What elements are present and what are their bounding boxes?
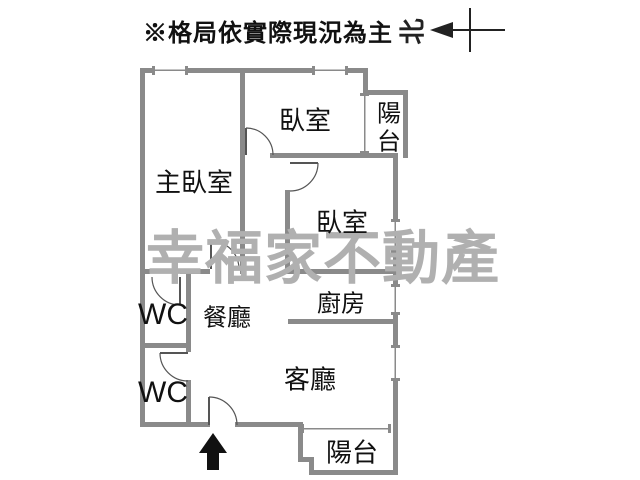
room-label-bedroom-top: 臥室 xyxy=(279,101,331,138)
room-label-master-bedroom: 主臥室 xyxy=(155,163,233,200)
room-label-balcony-bottom: 陽台 xyxy=(326,433,378,470)
room-label-living: 客廳 xyxy=(284,360,336,397)
room-label-kitchen: 廚房 xyxy=(317,284,365,319)
room-label-balcony-top: 陽台 xyxy=(375,100,403,155)
room-label-dining: 餐廳 xyxy=(203,298,251,333)
room-label-bedroom-right: 臥室 xyxy=(316,203,368,240)
room-label-wc-upper: WC xyxy=(138,298,188,332)
room-label-wc-lower: WC xyxy=(138,376,188,410)
entrance-arrow-icon xyxy=(199,433,227,470)
floorplan-page: ※格局依實際現況為主 北 xyxy=(0,0,640,480)
